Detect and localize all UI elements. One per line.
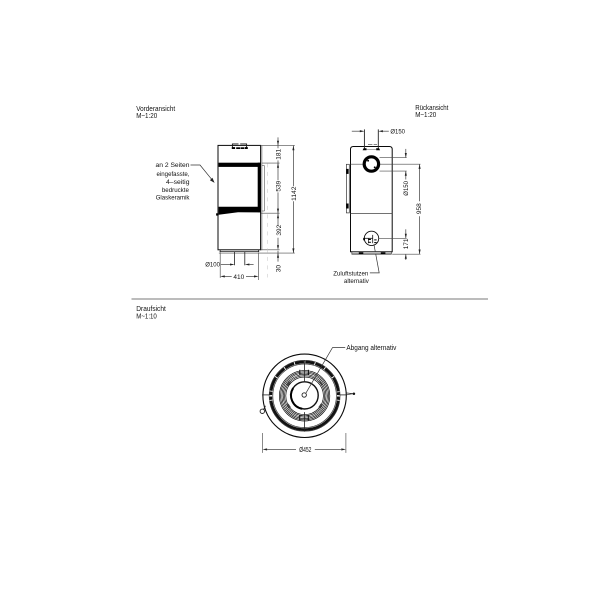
svg-text:392: 392 [276,225,283,236]
svg-text:958: 958 [416,203,423,214]
svg-text:Draufsicht: Draufsicht [136,306,166,313]
svg-text:bedruckte: bedruckte [162,187,189,194]
svg-text:410: 410 [233,274,244,281]
svg-text:M~1:20: M~1:20 [415,112,436,119]
svg-text:4–seitig: 4–seitig [166,179,190,186]
svg-text:M~1:10: M~1:10 [136,313,157,320]
svg-text:Ø150: Ø150 [390,128,405,135]
svg-text:30: 30 [276,265,283,272]
svg-text:Ø452: Ø452 [299,447,311,454]
svg-text:171: 171 [403,238,410,249]
svg-text:an 2 Seiten: an 2 Seiten [156,162,190,169]
svg-text:539: 539 [275,181,282,192]
svg-text:eingefasste,: eingefasste, [157,171,190,178]
svg-text:Ø100: Ø100 [205,262,220,269]
svg-text:181: 181 [275,149,282,160]
svg-text:Zuluftstutzen: Zuluftstutzen [333,271,368,278]
svg-text:Abgang alternativ: Abgang alternativ [346,345,396,352]
svg-text:1142: 1142 [291,186,298,201]
svg-text:alternativ: alternativ [344,278,370,285]
svg-text:Glaskeramik: Glaskeramik [156,195,190,202]
svg-text:M~1:20: M~1:20 [136,113,157,120]
svg-text:Rückansicht: Rückansicht [415,105,448,112]
svg-text:Ø150: Ø150 [403,181,410,196]
